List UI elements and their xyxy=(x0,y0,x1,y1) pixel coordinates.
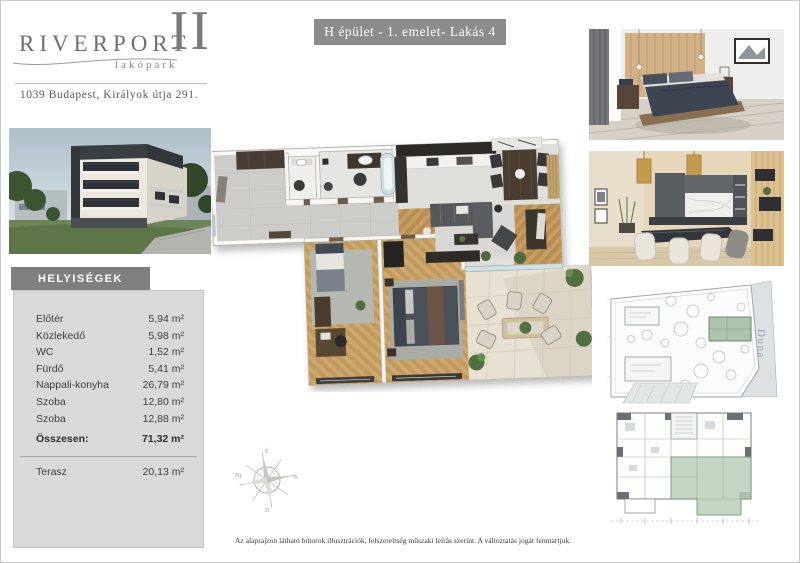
access-road xyxy=(623,383,697,403)
nightstand-2 xyxy=(387,348,396,356)
total-label: Összesen: xyxy=(36,431,89,448)
upper-cabinets xyxy=(685,175,733,193)
unit-title-banner: H épület - 1. emelet- Lakás 4 xyxy=(314,19,506,45)
main-building xyxy=(71,144,187,228)
building-exterior-photo xyxy=(9,128,211,254)
brochure-page: RIVERPORT II lakópark 1039 Budapest, Kir… xyxy=(0,0,800,563)
building-outline-2 xyxy=(625,357,671,381)
room-area: 26,79 m² xyxy=(143,377,184,394)
room-area: 5,98 m² xyxy=(148,328,184,345)
nightstand-left xyxy=(617,85,639,109)
rooms-list: Előtér 5,94 m² Közlekedő 5,98 m² WC 1,52… xyxy=(36,311,184,448)
logo-subtitle: lakópark xyxy=(115,59,177,71)
unit-title: H épület - 1. emelet- Lakás 4 xyxy=(324,24,496,40)
entry-wardrobe xyxy=(236,150,285,170)
kitchen-sink xyxy=(456,156,472,165)
room-row: Fürdő 5,41 m² xyxy=(36,361,184,378)
room-row: Előtér 5,94 m² xyxy=(36,311,184,328)
river-label: Duna xyxy=(755,329,767,359)
room-label: Előtér xyxy=(36,311,63,328)
coffee-table xyxy=(454,233,478,245)
room-label: Szoba xyxy=(36,394,66,411)
pendant-light-right xyxy=(698,54,704,60)
total-row: Összesen: 71,32 m² xyxy=(36,431,184,448)
kitchen-tall-unit xyxy=(394,157,408,203)
logo-divider xyxy=(15,83,207,84)
bedroom1-bed xyxy=(315,243,345,292)
bedroom2-closet xyxy=(383,241,404,268)
balcony-left xyxy=(625,499,655,513)
room-area: 1,52 m² xyxy=(148,344,184,361)
bedroom2-bed xyxy=(393,286,459,346)
terrace-area: 20,13 m² xyxy=(143,464,184,481)
bedroom-interior-photo xyxy=(589,29,784,140)
bath-sink xyxy=(358,155,372,164)
room-area: 5,41 m² xyxy=(148,361,184,378)
nightstand-1 xyxy=(385,278,394,286)
room-label: Fürdő xyxy=(36,361,63,378)
room-row: Szoba 12,80 m² xyxy=(36,394,184,411)
terrace xyxy=(465,265,592,379)
divider-plant xyxy=(763,187,771,195)
disclaimer-text: Az alaprajzon látható bútorok illusztrác… xyxy=(211,536,595,545)
total-area: 71,32 m² xyxy=(142,431,184,448)
curtain xyxy=(589,29,609,125)
dining-kitchen-photo xyxy=(589,151,784,266)
address-line: 1039 Budapest, Királyok útja 291. xyxy=(1,89,217,101)
room-label: Nappali-konyha xyxy=(36,377,109,394)
building-outline-1 xyxy=(625,307,659,325)
compass-rose: É K D Ny xyxy=(235,447,299,513)
rooms-panel: Előtér 5,94 m² Közlekedő 5,98 m² WC 1,52… xyxy=(13,290,204,548)
room-area: 12,80 m² xyxy=(143,394,184,411)
kitchen-counter-bar xyxy=(649,217,747,225)
terrace-label: Terasz xyxy=(36,464,67,481)
tv-sideboard xyxy=(426,250,480,263)
room-row: Nappali-konyha 26,79 m² xyxy=(36,377,184,394)
room-row: Közlekedő 5,98 m² xyxy=(36,328,184,345)
room-row: WC 1,52 m² xyxy=(36,344,184,361)
compass-north-label: É xyxy=(265,447,269,455)
compass-south-label: D xyxy=(265,508,270,513)
riverport-logo: RIVERPORT II lakópark xyxy=(11,7,211,79)
room-area: 5,94 m² xyxy=(148,311,184,328)
panel-divider xyxy=(20,456,197,457)
apartment-floor-plan xyxy=(212,132,592,392)
window-sill xyxy=(492,137,542,151)
rooms-panel-title: HELYISÉGEK xyxy=(38,273,123,285)
kitchen-hob xyxy=(426,158,438,166)
terrace-row: Terasz 20,13 m² xyxy=(36,464,184,481)
room-label: WC xyxy=(36,344,54,361)
compass-east-label: K xyxy=(294,475,299,481)
site-plan-drawing: Duna xyxy=(601,277,783,407)
bedroom1-wardrobe xyxy=(314,297,331,328)
wc-basin xyxy=(296,159,306,166)
compass-west-label: Ny xyxy=(235,473,242,479)
rooms-panel-header: HELYISÉGEK xyxy=(11,267,150,290)
pendant-light-left xyxy=(636,64,642,70)
floor-level-plan-drawing xyxy=(609,407,761,529)
room-area: 12,88 m² xyxy=(143,411,184,428)
room-row: Szoba 12,88 m² xyxy=(36,411,184,428)
room-label: Szoba xyxy=(36,411,66,428)
entry-mat xyxy=(269,231,291,239)
room-label: Közlekedő xyxy=(36,328,85,345)
